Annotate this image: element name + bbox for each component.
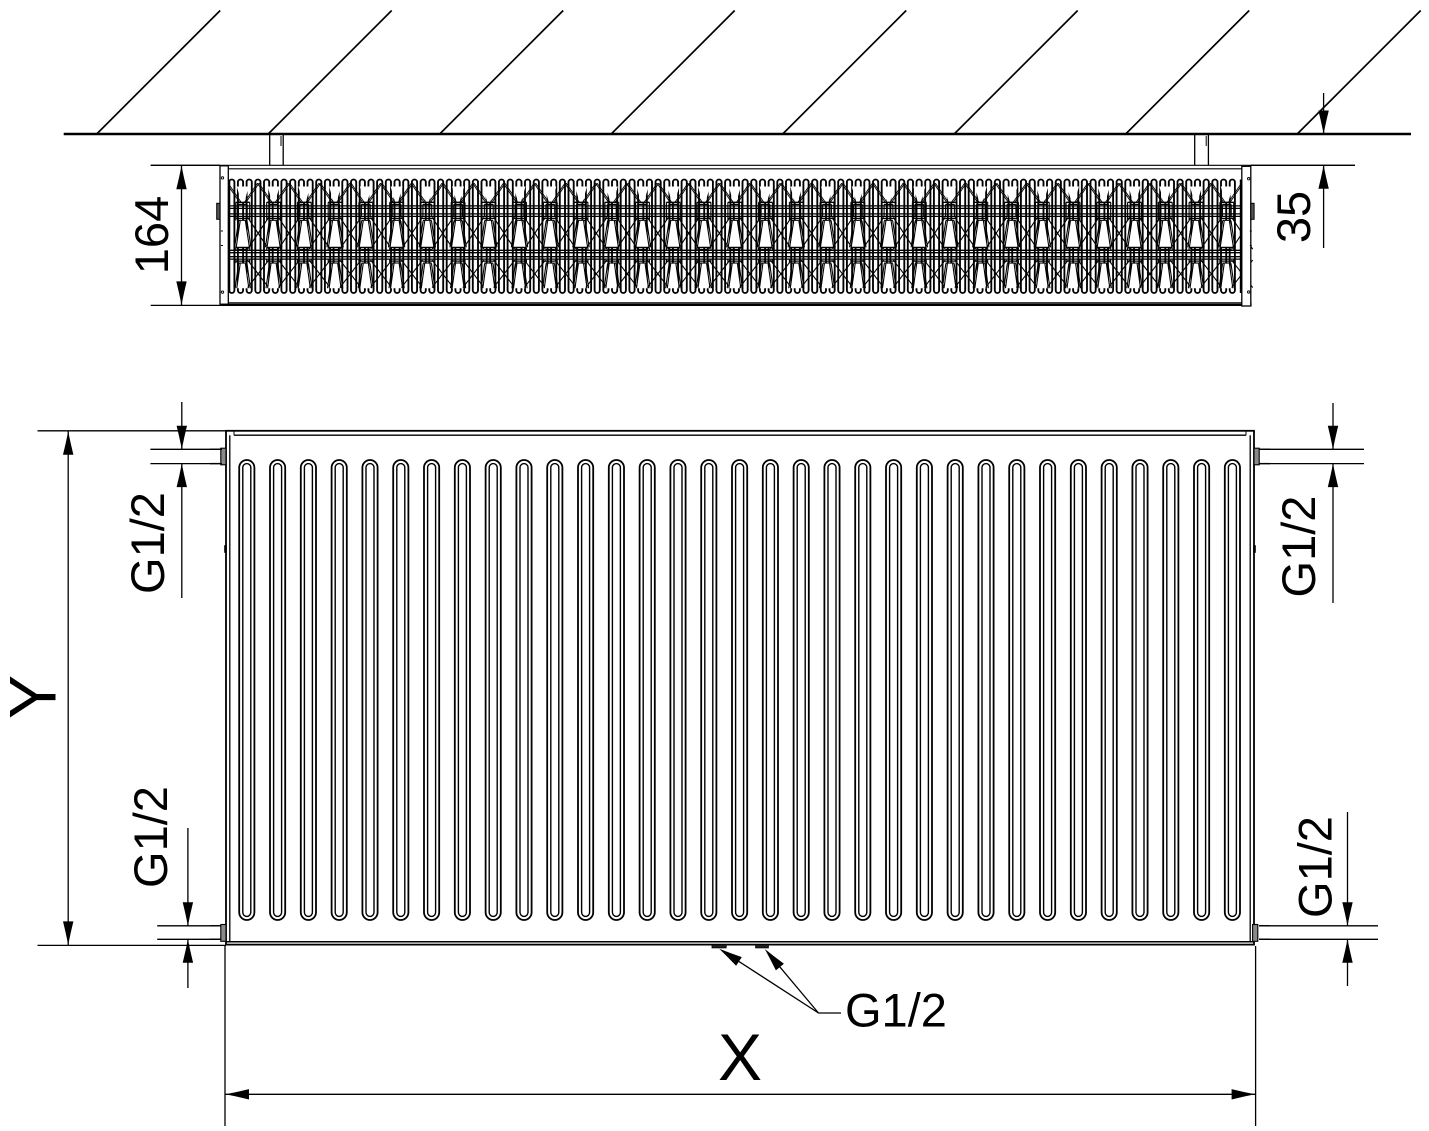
svg-text:35: 35 [1267, 191, 1320, 243]
svg-text:X: X [718, 1020, 762, 1094]
svg-text:Y: Y [0, 675, 70, 719]
svg-text:164: 164 [125, 196, 178, 274]
svg-text:G1/2: G1/2 [1272, 496, 1325, 598]
svg-text:G1/2: G1/2 [124, 786, 177, 888]
svg-text:G1/2: G1/2 [845, 984, 947, 1037]
svg-text:G1/2: G1/2 [121, 492, 174, 594]
svg-text:G1/2: G1/2 [1289, 816, 1342, 918]
